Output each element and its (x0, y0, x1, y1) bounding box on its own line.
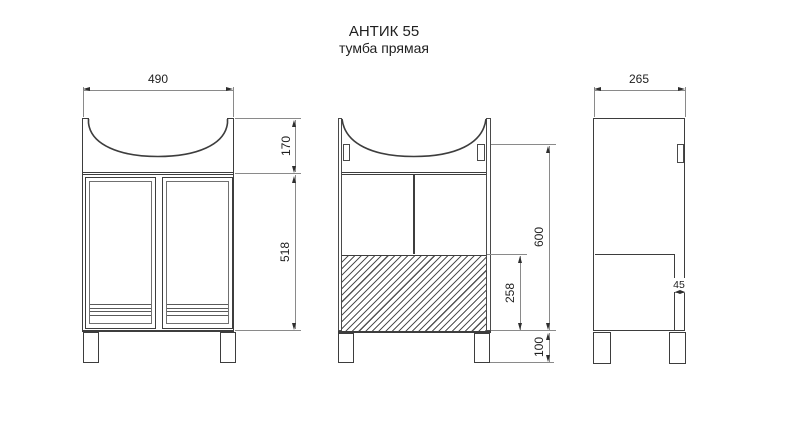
title-model-name: АНТИК 55 (284, 23, 484, 40)
dim-265-arrow-left (594, 87, 601, 91)
dim-258-label: 258 (503, 273, 517, 313)
right-door-vent-slat (167, 304, 228, 305)
dim-258-arrow-bottom (518, 323, 522, 330)
dim-45-arrow-right (680, 290, 685, 294)
dim-600-line (549, 146, 550, 330)
internal-right-leg (474, 333, 490, 363)
dim-518-label: 518 (278, 232, 292, 272)
right-hinge (477, 144, 485, 161)
dim-100-ext-bottom (490, 362, 554, 363)
right-door-vent-slat (167, 311, 228, 312)
dim-600-arrow-top (546, 146, 550, 153)
dim-518-arrow-top (292, 176, 296, 183)
left-door-vent-slat (90, 315, 151, 316)
dim-258-line (520, 256, 521, 330)
dim-265-ext-left (594, 87, 595, 117)
dim-100-arrow-bottom (546, 355, 550, 362)
dim-45-arrow-left (675, 290, 680, 294)
basin-bottom-rail-top (82, 172, 234, 173)
dim-600-label: 600 (532, 217, 546, 257)
center-divider (413, 175, 415, 254)
dim-170-ext-bottom (235, 173, 301, 174)
side-front-leg (669, 332, 687, 364)
dim-490-line (83, 90, 233, 91)
basin-curve-internal (341, 118, 487, 160)
title-product-type: тумба прямая (284, 40, 484, 56)
front-right-leg (220, 332, 236, 363)
right-door (162, 177, 233, 329)
dim-490-arrow-right (226, 87, 233, 91)
dim-518-ext-bottom (235, 330, 301, 331)
dim-265-ext-right (685, 87, 686, 117)
dim-265-line (594, 90, 685, 91)
dim-490-label: 490 (138, 72, 178, 86)
left-door (85, 177, 156, 329)
dim-518-arrow-bottom (292, 323, 296, 330)
dim-490-arrow-left (83, 87, 90, 91)
side-hinge-tab (677, 144, 685, 163)
dim-265-arrow-right (678, 87, 685, 91)
internal-left-leg (338, 333, 354, 363)
basin-bottom-rail-bottom (82, 174, 234, 175)
front-left-leg (83, 332, 99, 363)
basin-curve-front (82, 118, 234, 160)
dim-bottom-ext (491, 330, 556, 331)
side-compartment-top (595, 254, 675, 255)
left-door-vent-slat (90, 308, 151, 309)
dim-170-arrow-bottom (292, 166, 296, 173)
left-door-vent-slat (90, 311, 151, 312)
left-door-vent-slat (90, 304, 151, 305)
side-body-outline (593, 118, 685, 331)
dim-100-label: 100 (532, 327, 546, 367)
dim-100-arrow-top (546, 333, 550, 340)
left-hinge (343, 144, 351, 161)
right-door-inner-frame (166, 181, 229, 324)
dim-265-label: 265 (619, 72, 659, 86)
dim-258-arrow-top (518, 256, 522, 263)
dim-170-label: 170 (279, 126, 293, 166)
front-bottom-edge (82, 330, 234, 332)
technical-drawing-canvas: АНТИК 55 тумба прямая (0, 0, 800, 436)
internal-bottom-bar (338, 331, 491, 334)
dim-518-line (295, 175, 296, 329)
right-door-vent-slat (167, 315, 228, 316)
dim-490-ext-left (83, 87, 84, 117)
left-door-inner-frame (89, 181, 152, 324)
right-door-vent-slat (167, 308, 228, 309)
side-back-leg (593, 332, 611, 364)
dim-490-ext-right (233, 87, 234, 117)
dim-170-line (295, 120, 296, 173)
drawing-title: АНТИК 55 тумба прямая (284, 23, 484, 56)
hatched-bottom-zone (342, 255, 486, 331)
dim-600-arrow-bottom (546, 323, 550, 330)
